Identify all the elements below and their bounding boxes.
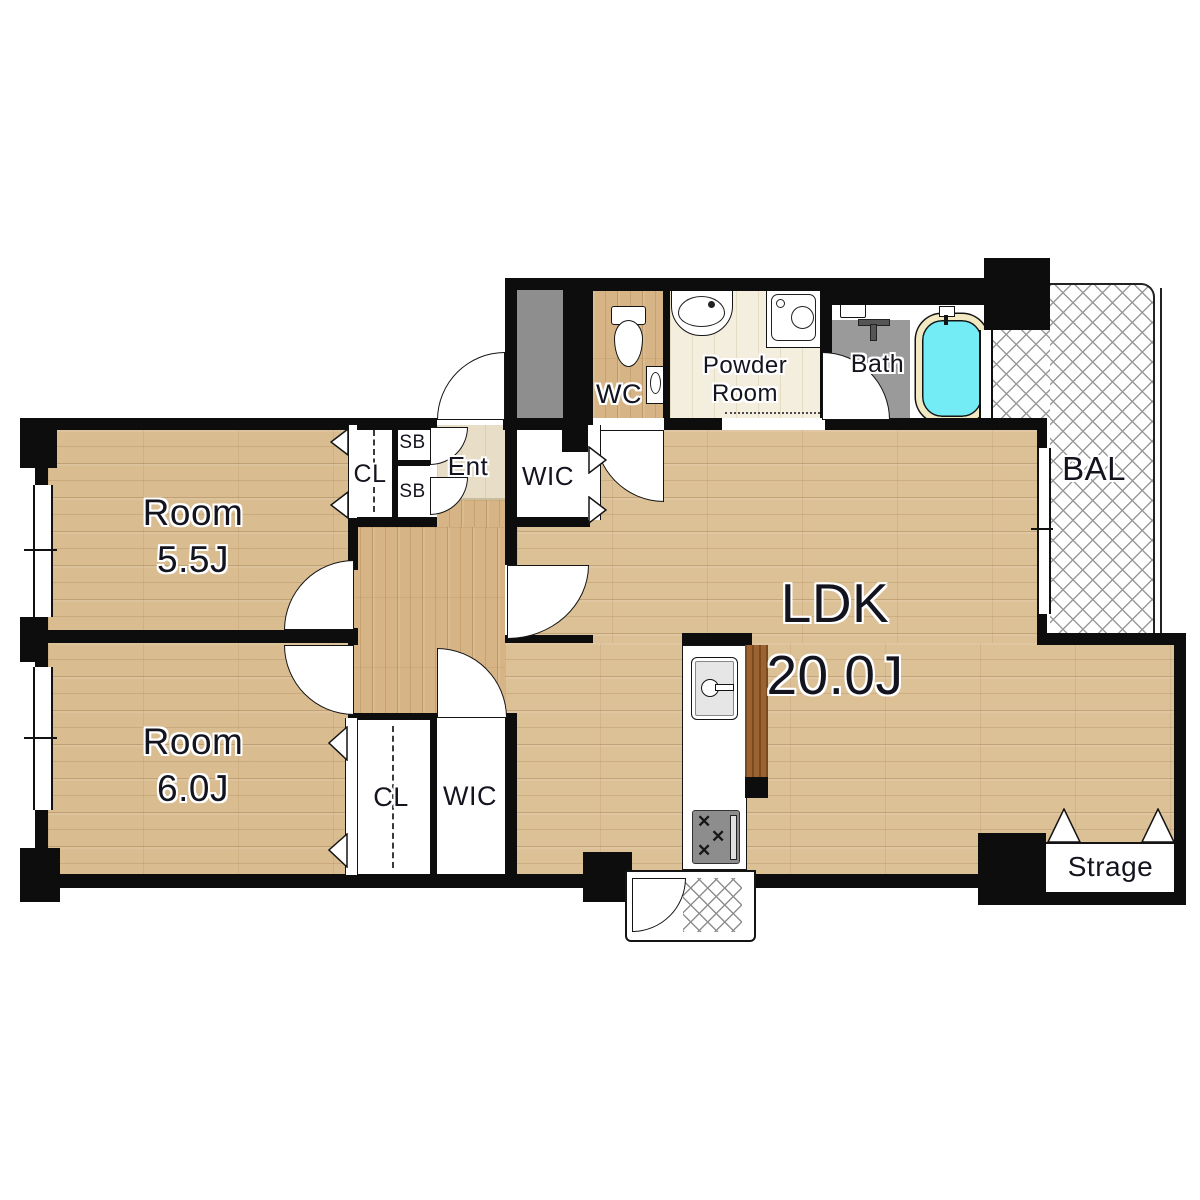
- burner-icon: ✕: [697, 842, 711, 859]
- powder-room-opening-dotted: [725, 412, 820, 414]
- shower-icon: [858, 317, 888, 341]
- wic-upper-corner-block: [562, 425, 590, 452]
- folding-door-icon: [330, 428, 349, 456]
- closet-lower-label: CL: [361, 782, 421, 813]
- stove-icon: ✕ ✕ ✕: [692, 810, 740, 864]
- folding-door-icon: [1047, 808, 1081, 843]
- tub-faucet-stem: [944, 315, 948, 325]
- bath-label: Bath: [835, 350, 920, 379]
- wall-hall-left-mid: [348, 628, 358, 645]
- folding-door-icon: [588, 496, 607, 524]
- wall-bottom-mid: [750, 874, 980, 888]
- room-60-size: 6.0J: [68, 765, 318, 812]
- wc-label: WC: [585, 379, 653, 410]
- window-room-55: [33, 485, 53, 617]
- powder-sink-basin: [678, 296, 725, 327]
- room-55-name: Room: [68, 489, 318, 536]
- wall-balcony-window-bottom: [1037, 614, 1047, 633]
- wall-wic-upper-bottom: [505, 517, 590, 527]
- front-door-arc: [437, 352, 505, 420]
- shoebox-upper-label: SB: [396, 432, 429, 454]
- wall-balcony-window-top: [1037, 418, 1047, 448]
- wall-shoebox-divider: [398, 460, 430, 466]
- room-55-size: 5.5J: [68, 536, 318, 583]
- bathtub-icon: [916, 314, 988, 423]
- window-bath-balcony: [979, 330, 993, 418]
- duct-shaft: [517, 290, 563, 418]
- storage-label: Strage: [1048, 851, 1173, 883]
- wall-room-divider: [22, 630, 358, 643]
- washer-drum: [791, 306, 814, 329]
- wall-main-horizontal-a: [22, 418, 437, 430]
- kitchen-counter-end-wall: [745, 777, 768, 798]
- ldk-size: 20.0J: [685, 639, 985, 711]
- window-tick: [1031, 528, 1053, 530]
- powder-line1: Powder: [660, 352, 830, 380]
- powder-faucet-dot: [708, 301, 715, 308]
- wall-bath-top: [820, 278, 984, 305]
- bath-counter-sink-icon: [840, 303, 866, 318]
- washing-machine-icon: [766, 289, 822, 348]
- folding-door-icon: [330, 491, 349, 519]
- service-porch-tile: [683, 878, 742, 932]
- wall-balcony-bottom: [1037, 633, 1186, 645]
- wic-upper-label: WIC: [505, 461, 591, 492]
- pillar-top-right: [984, 258, 1050, 330]
- floor-plan: ✕ ✕ ✕: [0, 0, 1200, 1200]
- washer-knob: [776, 299, 785, 308]
- wall-under-closet-shoebox: [348, 517, 437, 527]
- wall-topstrip-left: [505, 278, 517, 430]
- entrance-label: Ent: [434, 451, 502, 482]
- room-60-name: Room: [68, 718, 318, 765]
- folding-door-icon: [328, 833, 348, 868]
- block-storage-left: [978, 833, 1046, 892]
- wall-hall-bottom: [348, 713, 437, 720]
- room-60-label: Room 6.0J: [68, 718, 318, 812]
- folding-door-icon: [328, 726, 348, 761]
- balcony-railing-line: [1160, 288, 1162, 635]
- powder-line2: Room: [660, 380, 830, 408]
- closet-upper-label: CL: [340, 460, 400, 489]
- wall-ent-ldk-upper: [505, 430, 517, 565]
- folding-door-icon: [1141, 808, 1175, 843]
- burner-icon: ✕: [697, 813, 711, 830]
- powder-room-label: Powder Room: [660, 352, 830, 408]
- window-tick: [24, 549, 57, 551]
- stove-grill-bar: [730, 815, 737, 860]
- wall-right: [1174, 633, 1186, 905]
- wall-bottom-right: [978, 892, 1186, 905]
- balcony-floor-ext: [990, 330, 1050, 418]
- wic-lower-label: WIC: [427, 781, 513, 812]
- shoebox-lower-label: SB: [396, 481, 429, 503]
- window-tick: [24, 737, 57, 739]
- ldk-name: LDK: [685, 567, 985, 639]
- wall-main-horizontal-c: [664, 418, 722, 430]
- room-55-label: Room 5.5J: [68, 489, 318, 583]
- balcony-label: BAL: [1044, 450, 1144, 488]
- wall-bottom-left: [22, 874, 583, 888]
- burner-icon: ✕: [711, 828, 725, 845]
- ldk-label: LDK 20.0J: [685, 567, 985, 711]
